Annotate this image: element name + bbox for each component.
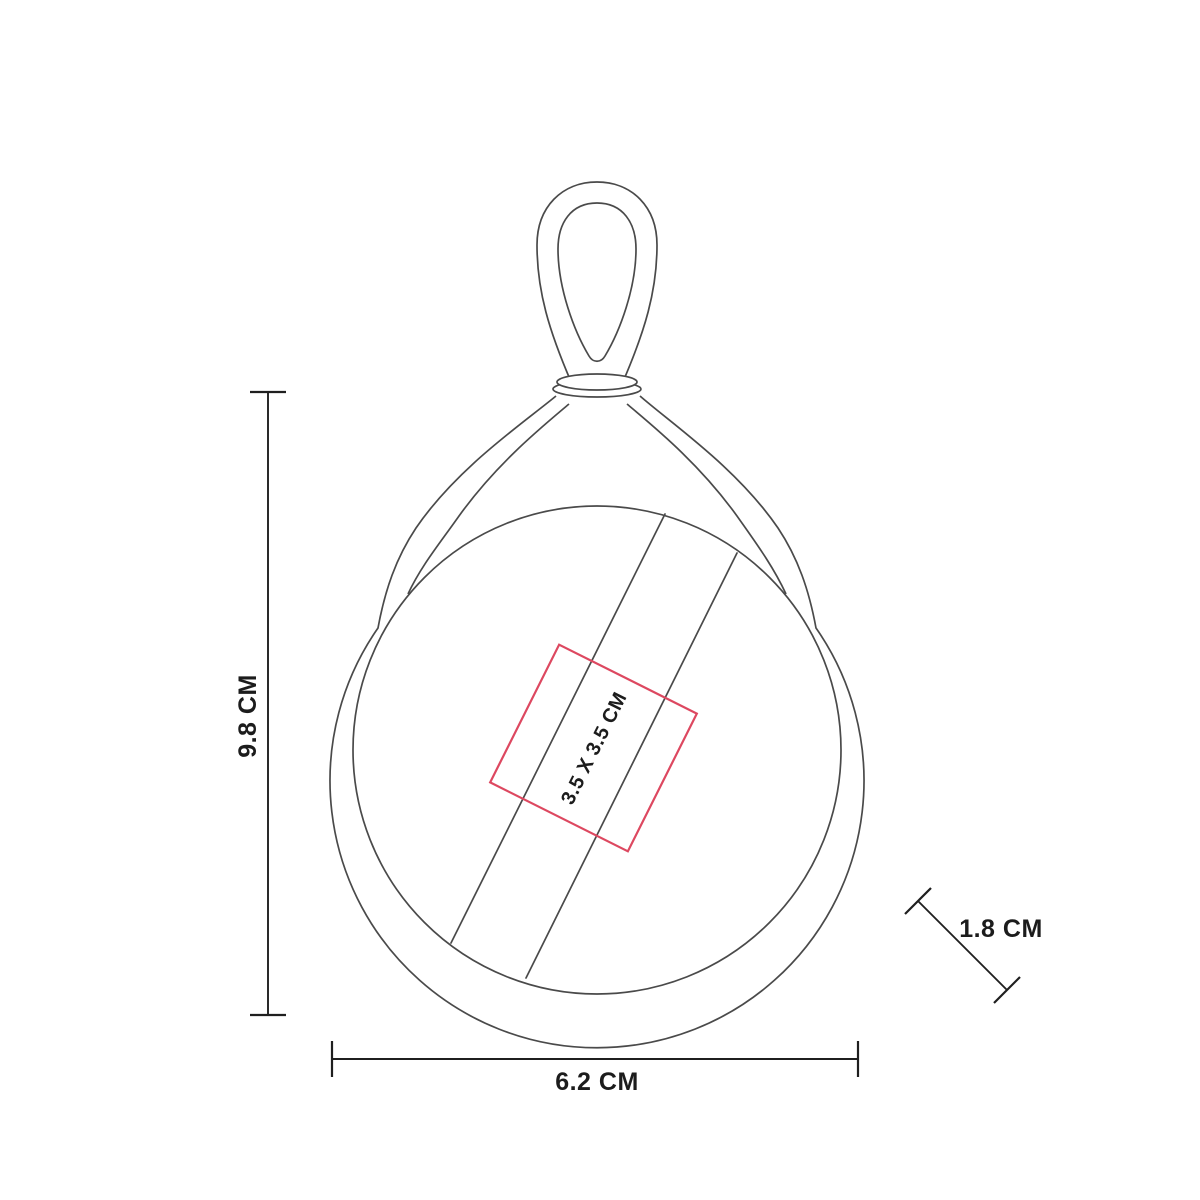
swivel-collar-upper: [557, 374, 637, 390]
height-dimension-label: 9.8 CM: [234, 674, 262, 758]
width-dimension-label: 6.2 CM: [555, 1068, 639, 1096]
product-dimension-diagram: 3.5 X 3.5 CM 9.8 CM 6.2 CM 1.8 CM: [0, 0, 1200, 1200]
diagram-svg: 3.5 X 3.5 CM 9.8 CM 6.2 CM 1.8 CM: [0, 0, 1200, 1200]
hand-strap-edge-right: [526, 553, 737, 978]
teardrop-body-inner-outline-left: [408, 404, 569, 594]
strap-dimension: 1.8 CM: [905, 888, 1043, 1003]
height-dimension: 9.8 CM: [234, 392, 286, 1015]
width-dimension: 6.2 CM: [332, 1041, 858, 1096]
hand-strap-edge-left: [451, 514, 665, 943]
teardrop-body-inner-outline-right: [627, 404, 786, 594]
strap-dimension-label: 1.8 CM: [959, 915, 1043, 943]
